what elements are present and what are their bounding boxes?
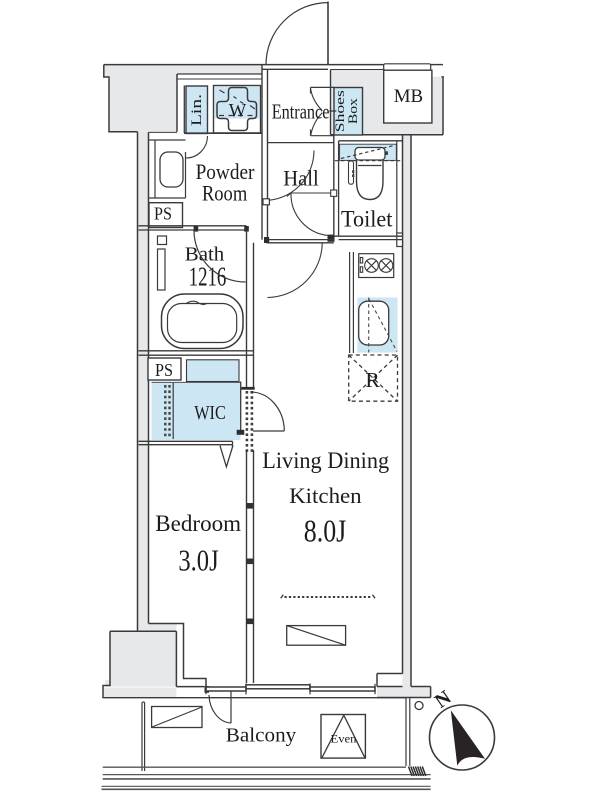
svg-text:Living Dining: Living Dining (262, 448, 389, 473)
svg-text:PS: PS (154, 204, 172, 224)
svg-text:Bedroom: Bedroom (155, 511, 241, 536)
svg-text:MB: MB (394, 86, 423, 107)
svg-text:WIC: WIC (194, 402, 226, 424)
svg-text:R: R (365, 368, 380, 392)
svg-text:Toilet: Toilet (341, 206, 393, 231)
svg-text:Even: Even (331, 732, 357, 746)
svg-text:Kitchen: Kitchen (289, 483, 362, 508)
svg-text:W: W (229, 101, 247, 122)
svg-text:PS: PS (155, 360, 173, 380)
svg-text:Room: Room (202, 181, 247, 206)
svg-text:8.0J: 8.0J (304, 513, 347, 548)
svg-text:Balcony: Balcony (226, 725, 297, 747)
svg-text:Hall: Hall (283, 166, 319, 191)
svg-text:Entrance: Entrance (272, 100, 330, 124)
svg-text:Lin.: Lin. (189, 94, 205, 126)
svg-text:Box: Box (345, 98, 360, 125)
svg-text:3.0J: 3.0J (178, 543, 218, 578)
